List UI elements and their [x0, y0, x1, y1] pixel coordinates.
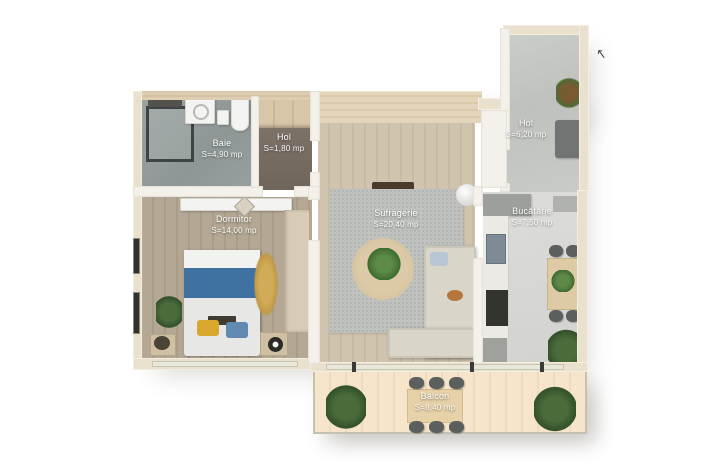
bedroom-window-left [133, 238, 140, 274]
wall-living-bedroom-upper [308, 186, 320, 200]
balcony-plant-right [534, 386, 576, 432]
vase [154, 336, 170, 350]
washer-door-icon [193, 104, 209, 120]
window-mullion [352, 362, 356, 372]
sofa-chaise [388, 328, 476, 358]
blue-pillow [226, 322, 248, 338]
bed-headboard [184, 250, 260, 268]
wall-mid-left [133, 186, 263, 197]
room-label-bucatarie: Bucătărie S=7,50 mp [498, 206, 566, 228]
coffee-table-plant [367, 248, 401, 280]
balcony-chair [449, 421, 464, 433]
bathroom-sink [217, 110, 229, 125]
room-area: S=4,90 mp [178, 150, 266, 160]
wall-entry-right [579, 25, 589, 195]
room-name: Dormitor [216, 214, 252, 224]
wall-top-left [133, 91, 316, 100]
wall-entry-top [503, 25, 589, 35]
wall-right-main [577, 190, 588, 372]
wardrobe [284, 210, 310, 332]
room-area: S=8,40 mp [404, 403, 466, 413]
wall-living-kitchen-upper [473, 186, 483, 206]
table-lamp [268, 337, 283, 352]
balcony-chair [429, 421, 444, 433]
room-name: Sufragerie [374, 208, 418, 218]
room-label-hol-mic: Hol S=1,80 mp [258, 132, 310, 154]
room-label-baie: Baie S=4,90 mp [178, 138, 266, 160]
window-mullion [540, 362, 544, 372]
kitchen-table-plant [551, 270, 575, 292]
wall-living-bedroom-lower [308, 240, 320, 364]
room-area: S=7,50 mp [498, 218, 566, 228]
floor-plan-canvas: Baie S=4,90 mp Hol S=1,80 mp Hol S=6,20 … [0, 0, 720, 475]
toilet [231, 99, 249, 131]
kitchen-chair [549, 245, 563, 257]
room-label-sufragerie: Sufragerie S=20,40 mp [348, 208, 444, 230]
hall-wardrobe [256, 98, 312, 128]
cat-on-sofa [447, 290, 463, 301]
room-name: Bucătărie [512, 206, 552, 216]
balcony-chair [429, 377, 444, 389]
stove [486, 290, 508, 326]
living-window-glazing [326, 364, 564, 370]
room-label-dormitor: Dormitor S=14,00 mp [190, 214, 278, 236]
kitchen-sink [486, 234, 506, 264]
room-label-balcon: Balcon S=8,40 mp [404, 391, 466, 413]
sofa-pillow [430, 252, 448, 266]
balcony-chair [449, 377, 464, 389]
wall-top-living [316, 91, 482, 123]
entry-hall-floor [507, 33, 580, 192]
bedroom-window-left-2 [133, 292, 140, 334]
balcony-plant-left [326, 384, 366, 430]
room-name: Hol [519, 118, 533, 128]
entry-cabinet [555, 120, 582, 158]
bed-blanket [184, 268, 260, 298]
bedroom-window-glazing [152, 361, 298, 367]
balcony-chair [409, 421, 424, 433]
room-name: Baie [213, 138, 232, 148]
wall-hall-living-upper [310, 91, 320, 141]
room-label-hol-intrare: Hol S=6,20 mp [498, 118, 554, 140]
north-arrow-icon: ↖ [595, 45, 608, 62]
pampas-grass [254, 252, 278, 316]
bedroom-plant [156, 294, 182, 330]
room-name: Hol [277, 132, 291, 142]
room-area: S=6,20 mp [498, 130, 554, 140]
balcony-chair [409, 377, 424, 389]
kitchen-chair [549, 310, 563, 322]
wall-living-kitchen-lower [473, 258, 483, 364]
yellow-pillow [197, 320, 219, 336]
window-mullion [470, 362, 474, 372]
room-area: S=14,00 mp [190, 226, 278, 236]
room-name: Balcon [421, 391, 450, 401]
room-area: S=1,80 mp [258, 144, 310, 154]
room-area: S=20,40 mp [348, 220, 444, 230]
